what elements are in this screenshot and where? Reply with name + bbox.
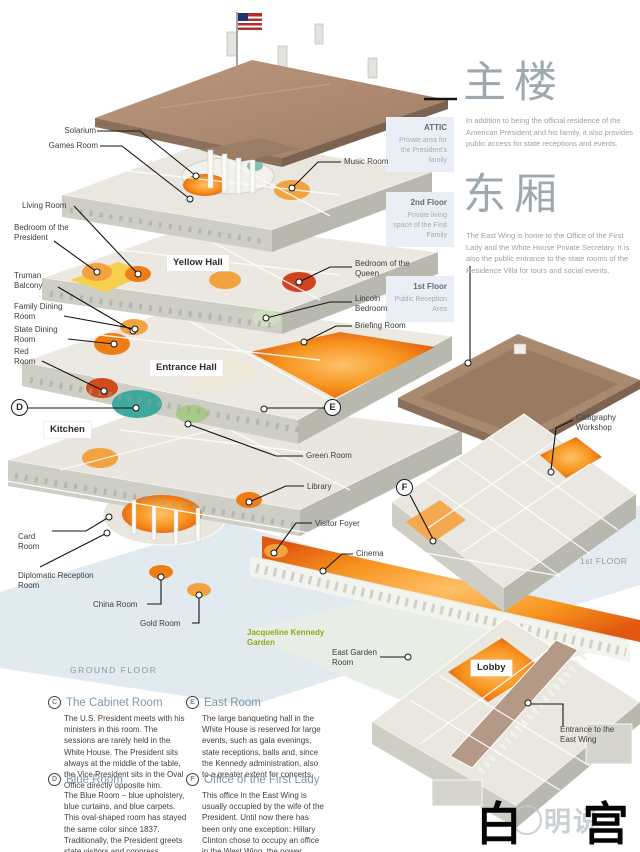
east-wing-description: The East Wing is home to the Office of t…	[466, 230, 634, 277]
caption-first-floor: 1st FLOOR	[580, 556, 627, 566]
floor-tag-title: 1st Floor	[390, 282, 447, 291]
legend-title: East Room	[204, 697, 261, 709]
label-family-dining-room: Family Dining Room	[14, 302, 72, 323]
page-title-white-house: 白 宫	[476, 788, 640, 852]
caption-ground-floor: GROUND FLOOR	[70, 665, 157, 675]
label-green-room: Green Room	[306, 451, 368, 461]
label-briefing-room: Briefing Room	[355, 321, 425, 331]
legend-title: Blue Room	[66, 774, 123, 786]
label-games-room: Games Room	[40, 141, 98, 151]
label-red-room: Red Room	[14, 347, 44, 368]
label-lincoln-bedroom: Lincoln Bedroom	[355, 294, 399, 315]
whitehouse-infographic: 主楼 In addition to being the official res…	[0, 0, 640, 852]
marker-e: E	[324, 399, 341, 416]
label-solarium: Solarium	[50, 126, 96, 136]
label-truman-balcony: Truman Balcony	[14, 271, 58, 292]
label-diplomatic-reception-room: Diplomatic Reception Room	[18, 571, 98, 592]
label-state-dining-room: State Dining Room	[14, 325, 72, 346]
label-china-room: China Room	[93, 600, 147, 610]
legend-letter-f: F	[186, 773, 199, 786]
legend-body: The large banqueting hall in the White H…	[202, 713, 326, 780]
label-living-room: Living Room	[22, 201, 78, 211]
marker-d: D	[11, 399, 28, 416]
label-entrance-hall: Entrance Hall	[150, 360, 223, 376]
label-kitchen: Kitchen	[44, 422, 91, 438]
legend-letter-e: E	[186, 696, 199, 709]
legend-blue-room: D Blue Room The Blue Room – blue upholst…	[48, 773, 188, 852]
legend-letter-c: C	[48, 696, 61, 709]
main-building-description: In addition to being the official reside…	[466, 115, 634, 150]
floor-tag-title: ATTIC	[390, 123, 447, 132]
label-calligraphy-workshop: Calligraphy Workshop	[576, 413, 634, 434]
label-library: Library	[307, 482, 357, 492]
label-bedroom-president: Bedroom of the President	[14, 223, 76, 244]
label-visitor-foyer: Visitor Foyer	[315, 519, 377, 529]
label-east-garden-room: East Garden Room	[332, 648, 390, 669]
label-yellow-hall: Yellow Hall	[167, 255, 229, 271]
label-entrance-east-wing: Entrance to the East Wing	[560, 725, 626, 746]
label-cinema: Cinema	[356, 549, 401, 559]
heading-east-wing: 东厢	[463, 174, 565, 217]
label-bedroom-queen: Bedroom of the Queen	[355, 259, 419, 280]
label-jacqueline-kennedy-garden: Jacqueline Kennedy Garden	[247, 628, 331, 649]
legend-office-first-lady: F Office of the First Lady This office i…	[186, 773, 326, 852]
label-gold-room: Gold Room	[140, 619, 192, 629]
floor-tag-2nd-floor: 2nd Floor Private living space of the Fi…	[386, 192, 454, 247]
floor-tag-subtitle: Private living space of the First Family	[390, 211, 447, 240]
legend-body: The Blue Room – blue upholstery, blue cu…	[64, 790, 188, 852]
marker-f: F	[396, 479, 413, 496]
heading-main-building: 主楼	[463, 62, 565, 105]
label-lobby: Lobby	[471, 660, 512, 676]
floor-tag-title: 2nd Floor	[390, 198, 447, 207]
legend-title: The Cabinet Room	[66, 697, 163, 709]
us-flag-icon	[237, 12, 262, 66]
legend-letter-d: D	[48, 773, 61, 786]
label-card-room: Card Room	[18, 532, 52, 553]
legend-east-room: E East Room The large banqueting hall in…	[186, 696, 326, 780]
legend-body: This office in the East Wing is usually …	[202, 790, 326, 852]
legend-title: Office of the First Lady	[204, 774, 319, 786]
label-music-room: Music Room	[344, 157, 404, 167]
